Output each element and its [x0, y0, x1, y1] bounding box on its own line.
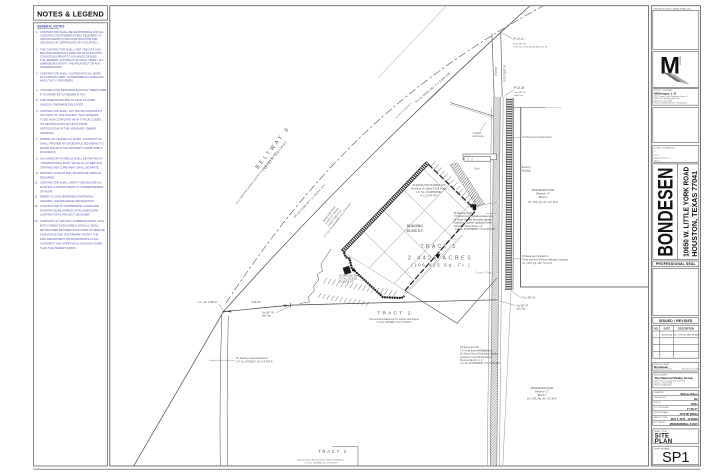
svg-text:Company, Texas Genco, LP: Company, Texas Genco, LP	[454, 226, 483, 228]
svg-text:Fnd. 5/8″ I.R.: Fnd. 5/8″ I.R.	[514, 43, 527, 45]
svg-text:Phone: 713-555-5521 Fax: Phone: 713-555-5521 Fax: 713-555-4521	[654, 103, 687, 105]
svg-text:08/21/2014: 08/21/2014	[661, 335, 672, 337]
svg-text:20′ Storm Swr. Esmt.: 20′ Storm Swr. Esmt.	[339, 274, 360, 277]
svg-text:HOUSTON, TEXAS 77041: HOUSTON, TEXAS 77041	[692, 171, 699, 257]
svg-text:Phone: —: Phone: —	[654, 160, 663, 162]
svg-text:Houston, Texas 77041: Houston, Texas 77041	[682, 368, 699, 371]
svg-text:Block 1: Block 1	[539, 195, 548, 199]
svg-text:CHECKED BY:: CHECKED BY:	[654, 397, 667, 399]
svg-text:C.F. No. 20130547090,: C.F. No. 20130547090,	[416, 190, 443, 194]
svg-text:2 In. Gal. 4.685 Ac.: 2 In. Gal. 4.685 Ac.	[198, 301, 219, 304]
svg-text:N.W. Cor. Unrestricted Reserve: N.W. Cor. Unrestricted Reserve “A”	[514, 45, 548, 48]
svg-text:C.F. No. 2570986, H.C.O.P.R.R.: C.F. No. 2570986, H.C.O.P.R.R.P.	[305, 462, 338, 464]
svg-text:DATE: DATE	[664, 327, 671, 330]
svg-text:DESIGNS: DESIGNS	[679, 56, 681, 66]
svg-text:PLAN: PLAN	[655, 439, 673, 445]
svg-text:with Cap: with Cap	[517, 307, 527, 310]
svg-text:Reserve “C”: Reserve “C”	[535, 389, 549, 393]
svg-text:DESCRIPTION: DESCRIPTION	[678, 328, 694, 330]
svg-text:Houston Electric, LLC: Houston Electric, LLC	[460, 359, 483, 362]
svg-text:P.O.C.: P.O.C.	[514, 37, 526, 41]
svg-text:PLOTTED BY:: PLOTTED BY:	[654, 422, 666, 424]
svg-text:Granted to CenterPoint Energy: Granted to CenterPoint Energy	[460, 356, 493, 359]
svg-text:TRACT 1: TRACT 1	[421, 244, 458, 250]
svg-text:Reserve “A”: Reserve “A”	[536, 192, 550, 196]
svg-text:with Cap: with Cap	[514, 94, 523, 97]
svg-text:SHEET TITLE:: SHEET TITLE:	[654, 431, 667, 433]
svg-text:16′ Above Ground Extending Upw: 16′ Above Ground Extending Upward	[454, 218, 493, 221]
svg-text:12.CONTRACTOR TO COORDINATE LA: 12.CONTRACTOR TO COORDINATE LANDSCAPEPLA…	[34, 204, 99, 217]
svg-text:71841: 71841	[691, 403, 699, 406]
svg-text:(Space): Texas 77—: (Space): Texas 77—	[654, 158, 671, 160]
svg-text:C.F. No. W725697, H.C.O.P.R.R.: C.F. No. W725697, H.C.O.P.R.R.P.	[236, 360, 273, 363]
svg-text:DATE PLOTTED:: DATE PLOTTED:	[654, 416, 668, 419]
svg-text:4723-SP (DWG): 4723-SP (DWG)	[679, 413, 697, 416]
svg-text:Vol. 255, Pg. 82, H.C.M.R.: Vol. 255, Pg. 82, H.C.M.R.	[527, 397, 558, 401]
svg-text:C.F. No. 2570986, H.C.O.P.R.R.: C.F. No. 2570986, H.C.O.P.R.R.P.	[377, 322, 412, 324]
svg-text:Non-exclusive Easement for Ing: Non-exclusive Easement for Ingress and E…	[369, 318, 420, 321]
svg-text:OLEFINS INDUSTRIES LTD: OLEFINS INDUSTRIES LTD	[413, 183, 446, 187]
svg-text:H.C.O.P.R.R.P.: H.C.O.P.R.R.P.	[420, 194, 438, 198]
svg-text:with Cap: with Cap	[262, 315, 272, 318]
svg-text:10′ Abandoned Asphalt Road: 10′ Abandoned Asphalt Road	[522, 136, 552, 139]
svg-text:C.F. No. 20130536067, H.C.O.P.: C.F. No. 20130536067, H.C.O.P.R.R.P.	[455, 229, 496, 231]
svg-text:13.A METHOD OF TWO WAY COMMUNI: 13.A METHOD OF TWO WAY COMMUNICATION, WI…	[34, 219, 105, 250]
svg-text:8.ALL HANDICAP SYMBOLS SHALL B: 8.ALL HANDICAP SYMBOLS SHALL BE PAINTED …	[36, 157, 103, 170]
svg-text:Vol. 1476, Pg. 409, H.C.D.R.: Vol. 1476, Pg. 409, H.C.D.R.	[522, 262, 553, 265]
svg-text:NO.: NO.	[654, 328, 658, 330]
svg-text:Residue of Called 4.626 Acres: Residue of Called 4.626 Acres	[412, 187, 448, 191]
svg-text:NA: NA	[694, 398, 698, 401]
svg-text:Set 5/8″ I.R.: Set 5/8″ I.R.	[514, 91, 526, 94]
svg-text:C.F. No. 20130621,: C.F. No. 20130621,	[339, 279, 359, 281]
svg-text:Melissa Olbert: Melissa Olbert	[681, 393, 698, 396]
svg-text:2.4425 ACRES: 2.4425 ACRES	[408, 256, 473, 262]
svg-text:NOTES & LEGEND: NOTES & LEGEND	[37, 10, 104, 19]
svg-text:BONDESEN: BONDESEN	[655, 168, 678, 257]
svg-text:Vol. 255, Pg. 82, H.C.M.R.: Vol. 255, Pg. 82, H.C.M.R.	[528, 200, 559, 204]
svg-text:SP1: SP1	[662, 450, 689, 466]
svg-text:P.O.B.: P.O.B.	[514, 86, 526, 90]
svg-text:Curb: Curb	[474, 168, 480, 171]
svg-text:Gravel Road: Gravel Road	[475, 272, 494, 275]
svg-text:133.43′: 133.43′	[251, 300, 261, 304]
svg-text:150.00′: 150.00′	[494, 66, 498, 76]
svg-text:10650 W. LITTLE YORK ROAD: 10650 W. LITTLE YORK ROAD	[683, 167, 690, 257]
svg-text:1.CONTRACTOR SHALL BE RESPONSI: 1.CONTRACTOR SHALL BE RESPONSIBLE FOR AL…	[36, 30, 104, 44]
svg-text:CLIENT / CONTRACTOR: CLIENT / CONTRACTOR	[654, 146, 675, 149]
svg-text:The National Realty Group: The National Realty Group	[654, 376, 693, 380]
svg-text:PROFESSIONAL SEAL: PROFESSIONAL SEAL	[656, 262, 696, 266]
svg-text:LTS —: LTS —	[654, 154, 660, 156]
svg-text:10′ Easement with: 10′ Easement with	[454, 212, 474, 215]
svg-text:Fnd. 5/8″ I.R.: Fnd. 5/8″ I.R.	[523, 298, 537, 300]
svg-text:MtDesigns, L.P.: MtDesigns, L.P.	[654, 91, 676, 95]
svg-text:DESIGNS EXCEPT LITERAL FINAL D: DESIGNS EXCEPT LITERAL FINAL DISC	[654, 7, 692, 10]
svg-text:DRAWN BY:: DRAWN BY:	[654, 391, 665, 394]
svg-text:—: —	[654, 151, 656, 153]
svg-text:Granted to Houston Lighting &: Granted to Houston Lighting & Power	[454, 222, 493, 225]
svg-text:10650 W. Little York Rd.: 10650 W. Little York Rd.	[654, 368, 673, 371]
svg-text:Link Fence: Link Fence	[473, 135, 485, 138]
svg-text:BUILDING: BUILDING	[407, 224, 423, 228]
svg-text:CITY OF HOU. AND BOARD: CITY OF HOU. AND BOARD	[673, 334, 700, 337]
svg-text:PERIMETER PARK: PERIMETER PARK	[532, 188, 555, 192]
svg-text:JOB NO:: JOB NO:	[654, 402, 662, 404]
svg-text:GENERAL NOTES: GENERAL NOTES	[37, 25, 64, 29]
svg-text:DWG FILENAME:: DWG FILENAME:	[654, 411, 669, 414]
svg-text:S 02°53′07″ E: S 02°53′07″ E	[502, 65, 507, 83]
svg-text:Set 5/8″ I.R.: Set 5/8″ I.R.	[262, 312, 275, 315]
svg-text:1″=40′-0″: 1″=40′-0″	[687, 408, 699, 411]
svg-text:10′ Easement with: 10′ Easement with	[460, 346, 480, 349]
svg-text:TRACT 2: TRACT 2	[377, 311, 412, 317]
svg-text:16′ Above Ground Extending Upw: 16′ Above Ground Extending Upward	[460, 353, 499, 356]
svg-text:Phone: 713-892-5500: Phone: 713-892-5500	[654, 385, 671, 387]
svg-text:C.F. No. 20130536067, H.C.O.P.: C.F. No. 20130536067, H.C.O.P.R.R.P.	[460, 363, 501, 365]
svg-text:35,000 S.F.: 35,000 S.F.	[406, 229, 423, 233]
svg-text:Block 1: Block 1	[538, 393, 547, 397]
svg-text:Building: Building	[522, 169, 532, 172]
svg-text:H.C.O.P.R.R.P.: H.C.O.P.R.R.P.	[339, 282, 354, 284]
svg-text:7.5′ Aerial Communications Eas: 7.5′ Aerial Communications Easement	[454, 215, 494, 218]
svg-text:MAY 5, 2015 - 11:39AM: MAY 5, 2015 - 11:39AM	[671, 418, 698, 421]
svg-text:MDESIGNSMILL-P 2015: MDESIGNSMILL-P 2015	[670, 423, 698, 426]
svg-text:ISSUED / REVISED: ISSUED / REVISED	[659, 319, 693, 323]
svg-text:PERIMETER PARK: PERIMETER PARK	[531, 386, 554, 390]
svg-text:Set 5/8″ I.R.: Set 5/8″ I.R.	[517, 304, 530, 307]
svg-text:(106,425 Sq. Ft.): (106,425 Sq. Ft.)	[411, 262, 471, 267]
svg-text:PLOTTED SCALE:: PLOTTED SCALE:	[654, 406, 670, 409]
svg-text:TRACT 2: TRACT 2	[318, 449, 348, 454]
svg-text:Non-exclusive Easement for Ing: Non-exclusive Easement for Ingress and E…	[298, 458, 346, 461]
